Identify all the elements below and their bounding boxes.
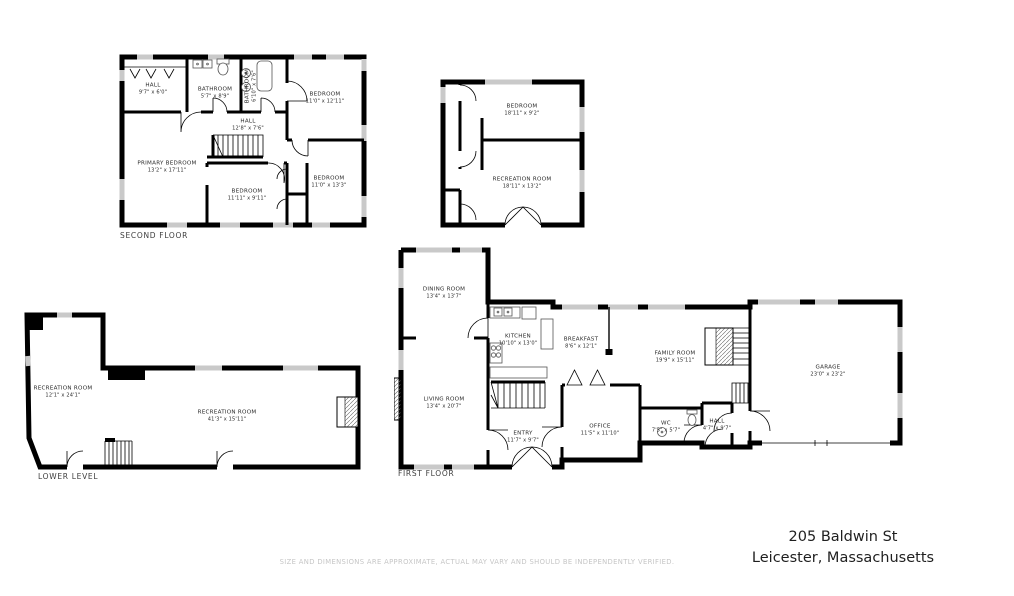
room-label-hall: HALL 4'7" x 9'7" bbox=[703, 417, 731, 432]
room-label-living: LIVING ROOM 13'4" x 20'7" bbox=[424, 395, 465, 410]
room-label-lower-rec-2: RECREATION ROOM 41'3" x 15'11" bbox=[198, 408, 257, 423]
address-line1: 205 Baldwin St bbox=[743, 527, 943, 548]
room-label-kitchen: KITCHEN 10'10" x 13'0" bbox=[499, 332, 538, 347]
address-line2: Leicester, Massachusetts bbox=[743, 548, 943, 569]
closet-hooks bbox=[122, 67, 187, 78]
floor-plan-upper-unit: BEDROOM 18'11" x 9'2" RECREATION ROOM 18… bbox=[438, 73, 588, 233]
wall-blocks bbox=[27, 315, 145, 380]
room-label-entry: ENTRY 11'7" x 9'7" bbox=[507, 429, 539, 444]
room-label-bedroom-tr: BEDROOM 11'0" x 12'11" bbox=[306, 90, 345, 105]
floor-plan-second: HALL 9'7" x 6'0" BATHROOM 5'7" x 8'9" BA… bbox=[118, 53, 368, 248]
room-label-breakfast: BREAKFAST 8'6" x 12'1" bbox=[564, 335, 599, 350]
room-label-wc: WC 7'5" x 5'7" bbox=[652, 419, 680, 434]
lower-level-title: LOWER LEVEL bbox=[38, 472, 98, 481]
room-label-unit-recreation: RECREATION ROOM 18'11" x 13'2" bbox=[493, 175, 552, 190]
room-label-bathroom-2: BATHROOM 6'10" x 7'6" bbox=[243, 69, 258, 103]
stairs bbox=[105, 438, 132, 467]
room-label-unit-bedroom: BEDROOM 18'11" x 9'2" bbox=[504, 102, 539, 117]
wall-cap bbox=[606, 349, 613, 355]
first-floor-title: FIRST FLOOR bbox=[398, 469, 454, 478]
room-label-primary-bedroom: PRIMARY BEDROOM 13'2" x 17'11" bbox=[137, 159, 196, 174]
floor-plan-page: HALL 9'7" x 6'0" BATHROOM 5'7" x 8'9" BA… bbox=[0, 0, 1014, 596]
disclaimer-text: SIZE AND DIMENSIONS ARE APPROXIMATE, ACT… bbox=[277, 558, 677, 566]
room-label-bedroom-mid: BEDROOM 11'11" x 9'11" bbox=[228, 187, 267, 202]
room-label-garage: GARAGE 23'0" x 23'2" bbox=[810, 363, 845, 378]
property-address: 205 Baldwin St Leicester, Massachusetts bbox=[743, 527, 943, 569]
room-label-bathroom-1: BATHROOM 5'7" x 8'9" bbox=[198, 85, 232, 100]
doors bbox=[460, 85, 476, 220]
room-label-office: OFFICE 11'5" x 11'10" bbox=[581, 422, 620, 437]
fireplace bbox=[705, 328, 733, 365]
room-label-dining: DINING ROOM 13'4" x 13'7" bbox=[423, 285, 465, 300]
second-floor-title: SECOND FLOOR bbox=[120, 231, 188, 240]
upper-unit-drawing bbox=[438, 73, 588, 233]
floor-plan-first: DINING ROOM 13'4" x 13'7" KITCHEN 10'10"… bbox=[394, 243, 909, 483]
porch-steps bbox=[394, 378, 401, 420]
room-label-lower-rec-1: RECREATION ROOM 12'1" x 24'1" bbox=[34, 384, 93, 399]
room-label-hall-mid: HALL 12'8" x 7'6" bbox=[232, 117, 264, 132]
chimney bbox=[337, 397, 358, 427]
footprint bbox=[401, 250, 900, 467]
room-label-hall-upper: HALL 9'7" x 6'0" bbox=[139, 81, 167, 96]
double-door bbox=[505, 207, 541, 225]
stairs bbox=[213, 135, 263, 157]
room-label-family: FAMILY ROOM 19'9" x 15'11" bbox=[655, 349, 696, 364]
windows bbox=[28, 315, 318, 368]
room-label-bedroom-br: BEDROOM 11'0" x 13'3" bbox=[311, 174, 346, 189]
floor-plan-lower: RECREATION ROOM 12'1" x 24'1" RECREATION… bbox=[18, 308, 368, 488]
